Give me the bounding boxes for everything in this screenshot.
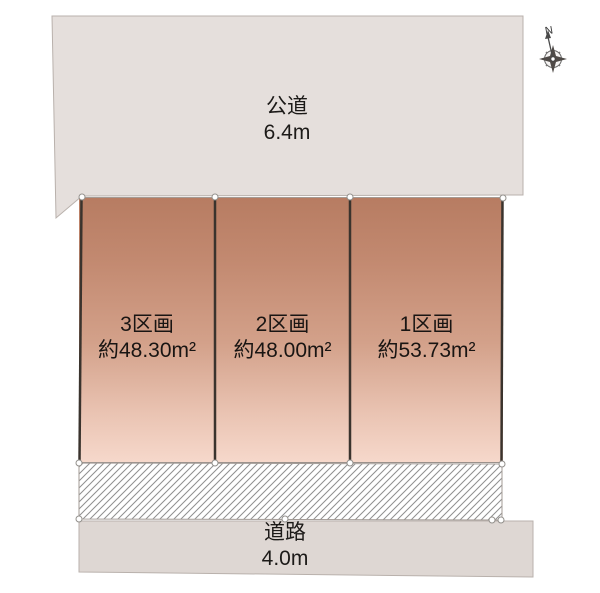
vertex-dot: [499, 461, 505, 467]
public-road-label: 公道 6.4m: [207, 94, 367, 146]
vertex-dot: [212, 194, 218, 200]
boundary-lines: [80, 197, 503, 463]
vertex-dot: [212, 460, 218, 466]
diagram-shapes: [0, 0, 600, 593]
vertex-dot: [76, 460, 82, 466]
front-road-width: 4.0m: [205, 546, 365, 572]
vertex-dot: [347, 194, 353, 200]
boundary-line-right: [502, 198, 503, 463]
vertex-dot: [76, 516, 82, 522]
boundary-line-left: [80, 198, 82, 462]
public-road-width: 6.4m: [207, 120, 367, 146]
vertex-dot: [347, 460, 353, 466]
lot-layout-diagram: 3区画 約48.30m² 2区画 約48.00m² 1区画 約53.73m²: [0, 0, 600, 593]
front-road-name: 道路: [205, 520, 365, 546]
vertex-dot: [500, 195, 506, 201]
vertex-dot: [498, 517, 504, 523]
vertex-dot: [79, 194, 85, 200]
front-road-label: 道路 4.0m: [205, 520, 365, 572]
public-road-name: 公道: [207, 94, 367, 120]
setback-hatch-area: [79, 463, 502, 520]
vertex-dot: [489, 517, 495, 523]
